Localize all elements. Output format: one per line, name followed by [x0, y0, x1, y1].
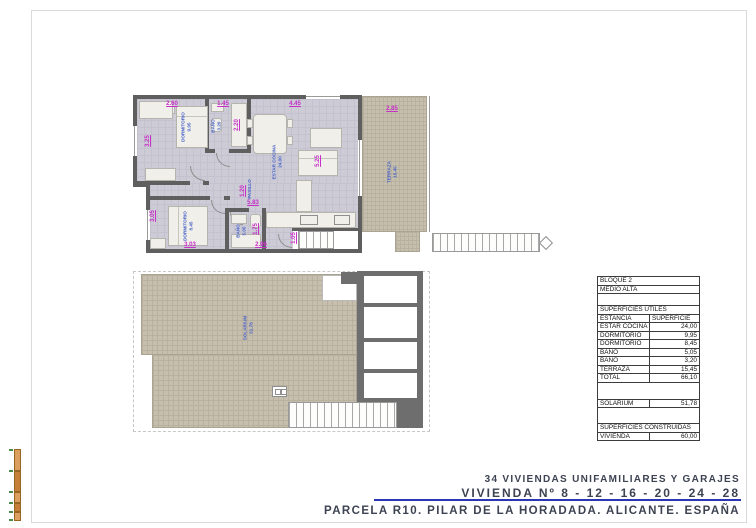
- table-row: BAÑO5,05: [597, 349, 700, 358]
- sink-bath2: [231, 214, 247, 224]
- dim-bath1-depth: 2.20: [234, 119, 240, 131]
- dim-left-dorm1: 3.25: [145, 135, 151, 147]
- sideboard: [310, 128, 342, 148]
- scale-segment: [14, 503, 21, 512]
- partition-bath1-bottom-b: [229, 149, 251, 153]
- table-row: DORMITORIO8,45: [597, 340, 700, 349]
- chair-1: [247, 119, 253, 128]
- table-row-spacer: [597, 294, 700, 306]
- table-row: SUPERFICIES ÚTILES: [597, 306, 700, 315]
- core-box-1: [364, 276, 417, 303]
- partition-bath1-bottom-a: [205, 149, 215, 153]
- window-living-glass: [306, 96, 340, 97]
- terrace-door-glass: [359, 140, 360, 196]
- partition-dorm2-top-a: [150, 196, 210, 200]
- room-label-terrace: TERRAZA15.45: [386, 161, 397, 183]
- notch-wall: [341, 272, 358, 284]
- core-box-3: [364, 342, 417, 369]
- partition-dorm2-bath2: [225, 208, 229, 249]
- scale-tick: [9, 491, 13, 493]
- dim-bath2-width: 1.75: [253, 223, 259, 235]
- project-title: 34 VIVIENDAS UNIFAMILIARES Y GARAJES: [485, 474, 740, 485]
- scale-segment: [14, 492, 21, 503]
- table-row: ESTAR COCINA24,00: [597, 323, 700, 332]
- room-label-dorm2: DORMITORIO8.45: [182, 211, 193, 241]
- dim-hall-length: 5.83: [247, 200, 259, 206]
- dim-top-living: 4.45: [289, 101, 301, 107]
- chair-3: [287, 119, 293, 128]
- title-divider-line: [374, 499, 741, 501]
- kitchen-hob: [334, 215, 350, 225]
- vent-2: [281, 389, 287, 395]
- dim-top-dorm1: 2.60: [166, 101, 178, 107]
- table-row: BAÑO3,20: [597, 357, 700, 366]
- dim-bottom-mid: 2.96: [255, 242, 267, 248]
- drawing-sheet: DORMITORIO9.95 BAÑO3.20 ESTAR COCINA24.0…: [0, 0, 756, 528]
- core-box-2: [364, 307, 417, 338]
- bed-dorm2-pillow-line: [178, 207, 179, 245]
- scale-tick: [9, 502, 13, 504]
- chair-2: [247, 136, 253, 145]
- partition-dorm1-bottom-b: [203, 181, 209, 185]
- dim-terrace-top: 2.85: [386, 106, 398, 112]
- core-bottom-wall: [396, 398, 423, 428]
- dim-top-bath1: 1.45: [217, 101, 229, 107]
- room-label-hall: PASILLO: [247, 179, 253, 199]
- scale-tick: [9, 470, 13, 472]
- scale-segment: [14, 471, 21, 492]
- window-dorm2-glass: [147, 210, 148, 240]
- surface-table: BLOQUE 2 MEDIO ALTA SUPERFICIES ÚTILES E…: [597, 276, 700, 441]
- scale-tick: [9, 519, 13, 521]
- storage-closet: [296, 180, 312, 212]
- scale-segment: [14, 512, 21, 521]
- scale-tick: [9, 449, 13, 451]
- dim-living-right: 5.25: [315, 155, 321, 167]
- dim-hall-width: 1.20: [240, 185, 246, 197]
- table-row: DORMITORIO9,95: [597, 332, 700, 341]
- dim-porch: 1.05: [291, 232, 297, 244]
- table-row-spacer: [597, 383, 700, 400]
- scale-tick: [9, 511, 13, 513]
- dresser-dorm1: [145, 168, 176, 181]
- room-label-dorm1: DORMITORIO9.95: [180, 112, 191, 142]
- table-row-spacer: [597, 408, 700, 424]
- dim-bottom-dorm2: 3.03: [184, 242, 196, 248]
- kitchen-sink: [300, 215, 318, 225]
- entry-stairs: [298, 231, 334, 249]
- table-row: ESTANCIASUPERFICIE: [597, 315, 700, 324]
- room-label-living: ESTAR COCINA24.00: [271, 145, 282, 180]
- partition-dorm1-bottom: [137, 181, 190, 185]
- scale-segment: [14, 449, 21, 471]
- location-title: PARCELA R10. PILAR DE LA HORADADA. ALICA…: [324, 505, 740, 517]
- terrace-railing-line: [429, 96, 430, 232]
- table-row: TOTAL66,10: [597, 374, 700, 383]
- wall-bottom: [146, 249, 362, 253]
- room-label-bath2: BAÑO5.05: [235, 224, 246, 238]
- dwelling-numbers: VIVIENDA Nº 8 - 12 - 16 - 20 - 24 - 28: [461, 486, 740, 500]
- page-border: [31, 10, 747, 523]
- walkway-strip: [432, 233, 540, 252]
- table-row: SOLARIUM51,78: [597, 400, 700, 409]
- terrace-tiles-tongue: [395, 231, 420, 252]
- wardrobe-dorm2: [150, 238, 166, 249]
- room-label-bath1: BAÑO3.20: [210, 119, 221, 133]
- table-row: SUPERFICIES CONSTRUIDAS: [597, 424, 700, 433]
- core-box-4: [364, 373, 417, 398]
- window-dorm1-glass: [134, 126, 135, 156]
- dim-left-dorm2: 3.05: [150, 210, 156, 222]
- table-row: VIVIENDA60,00: [597, 433, 700, 442]
- table-row: BLOQUE 2: [597, 277, 700, 286]
- table-row: TERRAZA15,45: [597, 366, 700, 375]
- room-label-solarium: SOLARIUM51.78: [242, 316, 253, 341]
- solarium-stairs: [288, 402, 397, 428]
- chair-4: [287, 136, 293, 145]
- table-row: MEDIO ALTA: [597, 286, 700, 295]
